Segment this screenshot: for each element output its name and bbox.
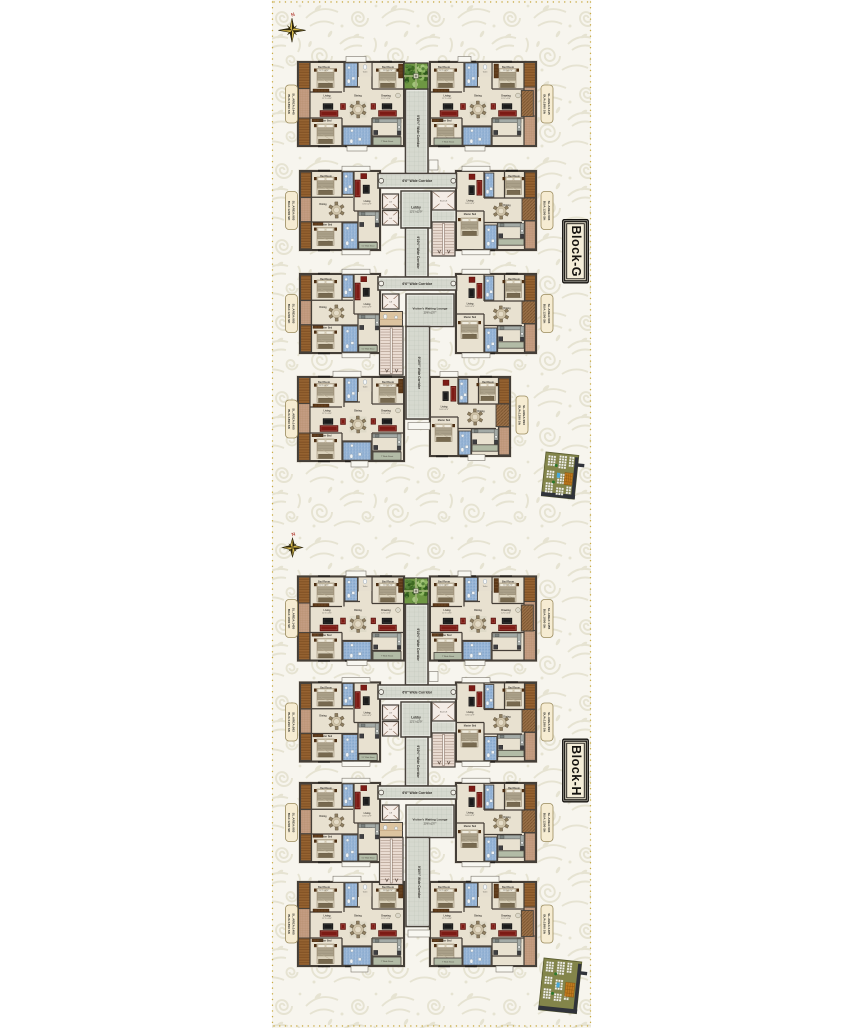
- svg-text:6′6″ Wide Corridor: 6′6″ Wide Corridor: [402, 282, 432, 286]
- svg-text:SL.AREA:1455: SL.AREA:1455: [547, 608, 551, 630]
- svg-text:BUA:1890 Sft: BUA:1890 Sft: [287, 609, 291, 629]
- svg-text:SL.AREA:993: SL.AREA:993: [292, 201, 296, 221]
- svg-text:BUA:1290 Sft: BUA:1290 Sft: [543, 304, 547, 324]
- svg-text:6′6″ Wide Corridor: 6′6″ Wide Corridor: [402, 690, 432, 694]
- svg-text:SL.AREA:1455: SL.AREA:1455: [292, 608, 296, 630]
- svg-text:Stair Lift: Stair Lift: [440, 711, 448, 714]
- svg-text:BUA:1890 Sft: BUA:1890 Sft: [287, 914, 291, 934]
- svg-text:BUA:1890 Sft: BUA:1890 Sft: [543, 914, 547, 934]
- svg-text:Stair Lift: Stair Lift: [440, 200, 448, 203]
- svg-text:Lift: Lift: [389, 812, 392, 815]
- svg-text:Visitor's Waiting Lounge: Visitor's Waiting Lounge: [413, 306, 448, 310]
- svg-text:SL.AREA:993: SL.AREA:993: [547, 712, 551, 732]
- svg-text:20′6″x13′7″: 20′6″x13′7″: [424, 310, 437, 314]
- svg-text:Lift: Lift: [389, 712, 392, 715]
- svg-text:BUA:1890 Sft: BUA:1890 Sft: [287, 409, 291, 429]
- svg-text:BUA:1890 Sft: BUA:1890 Sft: [543, 609, 547, 629]
- svg-text:9′10½″ Wide Corridor: 9′10½″ Wide Corridor: [417, 357, 421, 390]
- svg-text:BUA:1290 Sft: BUA:1290 Sft: [287, 201, 291, 221]
- svg-text:BUA:1290 Sft: BUA:1290 Sft: [543, 712, 547, 732]
- svg-text:BUA:1890 Sft: BUA:1890 Sft: [287, 94, 291, 114]
- svg-text:SL.AREA:1445: SL.AREA:1445: [292, 93, 296, 115]
- svg-text:12′1″x12′9″: 12′1″x12′9″: [410, 720, 423, 724]
- svg-text:Block-G: Block-G: [569, 226, 583, 277]
- svg-text:SL.AREA:993: SL.AREA:993: [547, 813, 551, 833]
- svg-text:6′6″ Wide Corridor: 6′6″ Wide Corridor: [402, 791, 432, 795]
- svg-text:6′6″ Wide Corridor: 6′6″ Wide Corridor: [402, 179, 432, 183]
- svg-text:Lobby: Lobby: [411, 206, 421, 210]
- svg-text:SL.AREA:1445: SL.AREA:1445: [547, 93, 551, 115]
- svg-text:20′6″x13′7″: 20′6″x13′7″: [424, 821, 437, 825]
- svg-text:BUA:1290 Sft: BUA:1290 Sft: [518, 405, 522, 425]
- svg-text:SL.AREA:993: SL.AREA:993: [547, 304, 551, 324]
- svg-text:9′10½″ Wide Corridor: 9′10½″ Wide Corridor: [417, 866, 421, 899]
- svg-text:Lift: Lift: [389, 301, 392, 304]
- svg-text:Visitor's Waiting Lounge: Visitor's Waiting Lounge: [413, 817, 448, 821]
- svg-text:Lift: Lift: [389, 217, 392, 220]
- svg-text:12′1″x12′9″: 12′1″x12′9″: [410, 210, 423, 214]
- svg-text:9′10½″ Wide Corridor: 9′10½″ Wide Corridor: [416, 628, 420, 661]
- svg-text:SL.AREA:993: SL.AREA:993: [292, 304, 296, 324]
- svg-text:9′10½″ Wide Corridor: 9′10½″ Wide Corridor: [416, 115, 420, 148]
- svg-text:SL.AREA:1455: SL.AREA:1455: [292, 408, 296, 430]
- svg-text:SL.AREA:993: SL.AREA:993: [292, 813, 296, 833]
- svg-text:BUA:1890 Sft: BUA:1890 Sft: [543, 94, 547, 114]
- svg-text:SL.AREA:1485: SL.AREA:1485: [547, 913, 551, 935]
- svg-text:Lift: Lift: [389, 201, 392, 204]
- svg-text:SL.AREA:993: SL.AREA:993: [522, 405, 526, 425]
- svg-text:Lobby: Lobby: [411, 716, 421, 720]
- svg-text:BUA:1290 Sft: BUA:1290 Sft: [287, 304, 291, 324]
- svg-text:SL.AREA:1455: SL.AREA:1455: [292, 913, 296, 935]
- svg-text:BUA:1290 Sft: BUA:1290 Sft: [543, 201, 547, 221]
- svg-text:SL.AREA:993: SL.AREA:993: [547, 201, 551, 221]
- svg-text:Block-H: Block-H: [569, 745, 583, 796]
- svg-text:BUA:1290 Sft: BUA:1290 Sft: [287, 813, 291, 833]
- svg-text:Lift: Lift: [389, 728, 392, 731]
- svg-text:9′10½″ Wide Corridor: 9′10½″ Wide Corridor: [416, 236, 420, 269]
- svg-text:BUA:1290 Sft: BUA:1290 Sft: [287, 712, 291, 732]
- svg-text:BUA:1290 Sft: BUA:1290 Sft: [543, 813, 547, 833]
- svg-text:SL.AREA:993: SL.AREA:993: [292, 712, 296, 732]
- svg-text:9′10½″ Wide Corridor: 9′10½″ Wide Corridor: [416, 745, 420, 778]
